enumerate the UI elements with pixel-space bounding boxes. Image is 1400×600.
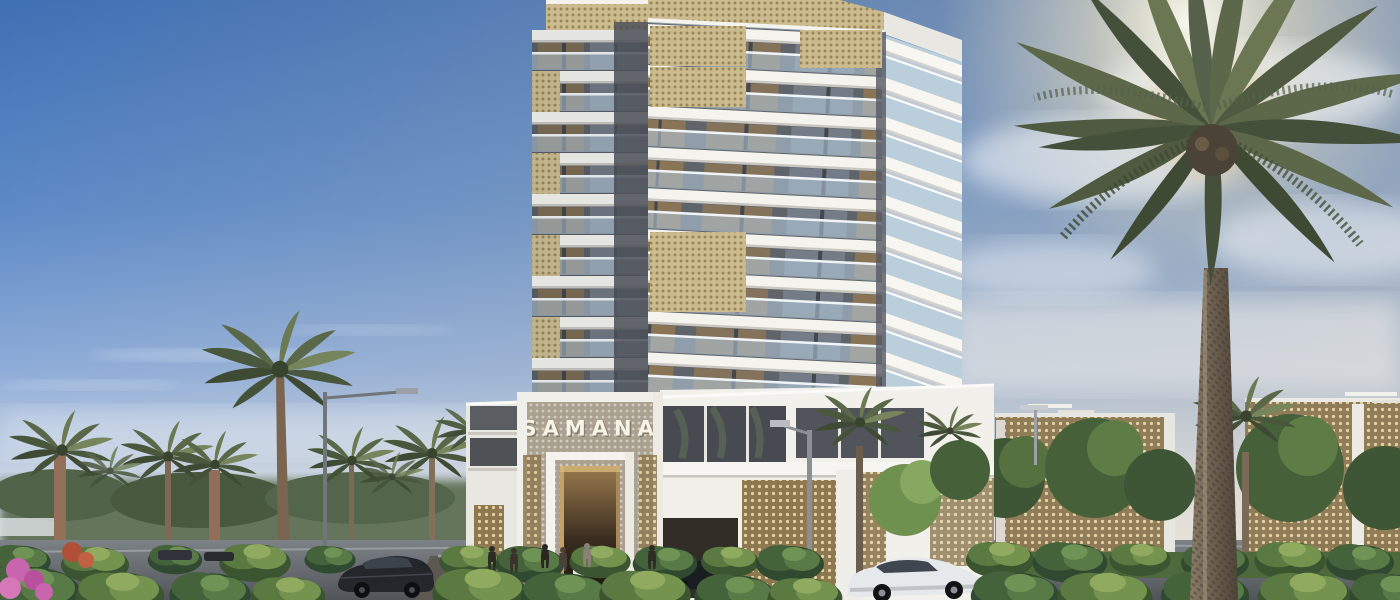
tower-side-face xyxy=(882,34,962,389)
architectural-render: SAMANA SAMANA xyxy=(0,0,1400,600)
main-tower xyxy=(532,0,962,399)
scene-svg: SAMANA SAMANA xyxy=(0,0,1400,600)
rooftop-panel xyxy=(1345,392,1397,396)
samana-sign: SAMANA xyxy=(522,417,660,441)
distant-canopy xyxy=(0,518,58,536)
